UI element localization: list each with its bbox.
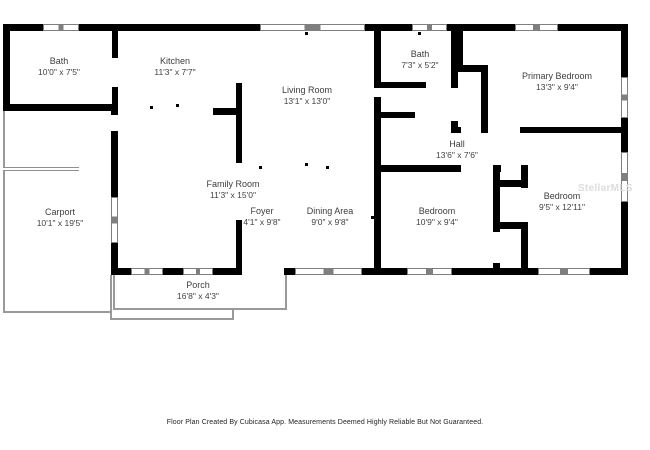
wall-segment: [111, 104, 118, 115]
window: [111, 197, 118, 243]
window: [260, 24, 365, 31]
thin-wall: [110, 318, 234, 320]
door-tick: [150, 106, 153, 109]
wall-segment: [3, 104, 118, 111]
room-label-family-room: Family Room 11'3" x 15'0": [173, 178, 293, 201]
thin-wall: [113, 275, 115, 310]
wall-segment: [558, 24, 628, 31]
wall-segment: [112, 31, 118, 58]
stellar-mls-watermark: StellarMLS: [578, 183, 633, 194]
wall-segment: [111, 131, 118, 197]
wall-segment: [621, 202, 628, 275]
room-label-bath-1: Bath 10'0" x 7'5": [0, 55, 119, 78]
wall-segment: [374, 31, 381, 83]
window: [412, 24, 447, 31]
wall-segment: [236, 220, 242, 268]
carport-wall: [3, 167, 79, 171]
door-tick: [259, 166, 262, 169]
wall-segment: [493, 263, 500, 268]
wall-segment: [284, 268, 295, 275]
door-tick: [176, 104, 179, 107]
thin-wall: [113, 308, 287, 310]
window: [621, 77, 628, 118]
wall-segment: [621, 118, 628, 152]
door-tick: [305, 32, 308, 35]
wall-segment: [3, 24, 10, 111]
wall-segment: [481, 65, 488, 133]
window: [183, 268, 213, 275]
door-tick: [371, 216, 374, 219]
room-label-living-room: Living Room 13'1" x 13'0": [247, 84, 367, 107]
wall-segment: [452, 268, 538, 275]
window: [295, 268, 362, 275]
wall-segment: [621, 24, 628, 77]
thin-wall: [3, 311, 111, 313]
room-label-hall: Hall 13'6" x 7'6": [397, 138, 517, 161]
wall-segment: [521, 165, 528, 172]
wall-segment: [112, 87, 118, 104]
thin-wall: [110, 275, 112, 312]
room-label-porch: Porch 16'8" x 4'3": [138, 279, 258, 302]
wall-segment: [482, 127, 488, 133]
wall-segment: [213, 108, 236, 115]
wall-segment: [374, 97, 381, 268]
wall-segment: [213, 268, 242, 275]
wall-segment: [365, 24, 412, 31]
wall-segment: [374, 112, 415, 118]
wall-segment: [362, 268, 407, 275]
window: [43, 24, 79, 31]
thin-wall: [110, 311, 112, 319]
wall-segment: [163, 268, 183, 275]
door-tick: [418, 32, 421, 35]
window: [407, 268, 452, 275]
window: [538, 268, 590, 275]
disclaimer-text: Floor Plan Created By Cubicasa App. Meas…: [0, 419, 650, 426]
wall-segment: [111, 268, 131, 275]
wall-segment: [374, 165, 461, 172]
door-tick: [326, 166, 329, 169]
thin-wall: [232, 310, 234, 320]
window: [515, 24, 558, 31]
wall-segment: [493, 180, 528, 187]
wall-segment: [374, 82, 426, 88]
room-label-bedroom-1: Bedroom 10'9" x 9'4": [377, 205, 497, 228]
wall-segment: [79, 24, 260, 31]
room-label-foyer: Foyer 4'1" x 9'8": [202, 205, 322, 228]
thin-wall: [3, 111, 5, 313]
window: [131, 268, 163, 275]
room-label-primary-bedroom: Primary Bedroom 13'3" x 9'4": [497, 70, 617, 93]
wall-segment: [493, 165, 501, 172]
room-label-carport: Carport 10'1" x 19'5": [0, 206, 120, 229]
wall-segment: [236, 83, 242, 163]
wall-segment: [451, 127, 461, 133]
wall-segment: [493, 222, 528, 229]
wall-segment: [447, 24, 515, 31]
door-tick: [305, 163, 308, 166]
window: [621, 152, 628, 202]
thin-wall: [285, 275, 287, 310]
floor-plan: Bath 10'0" x 7'5" Kitchen 11'3" x 7'7" L…: [0, 0, 650, 450]
room-label-kitchen: Kitchen 11'3" x 7'7": [115, 55, 235, 78]
wall-segment: [520, 127, 621, 133]
